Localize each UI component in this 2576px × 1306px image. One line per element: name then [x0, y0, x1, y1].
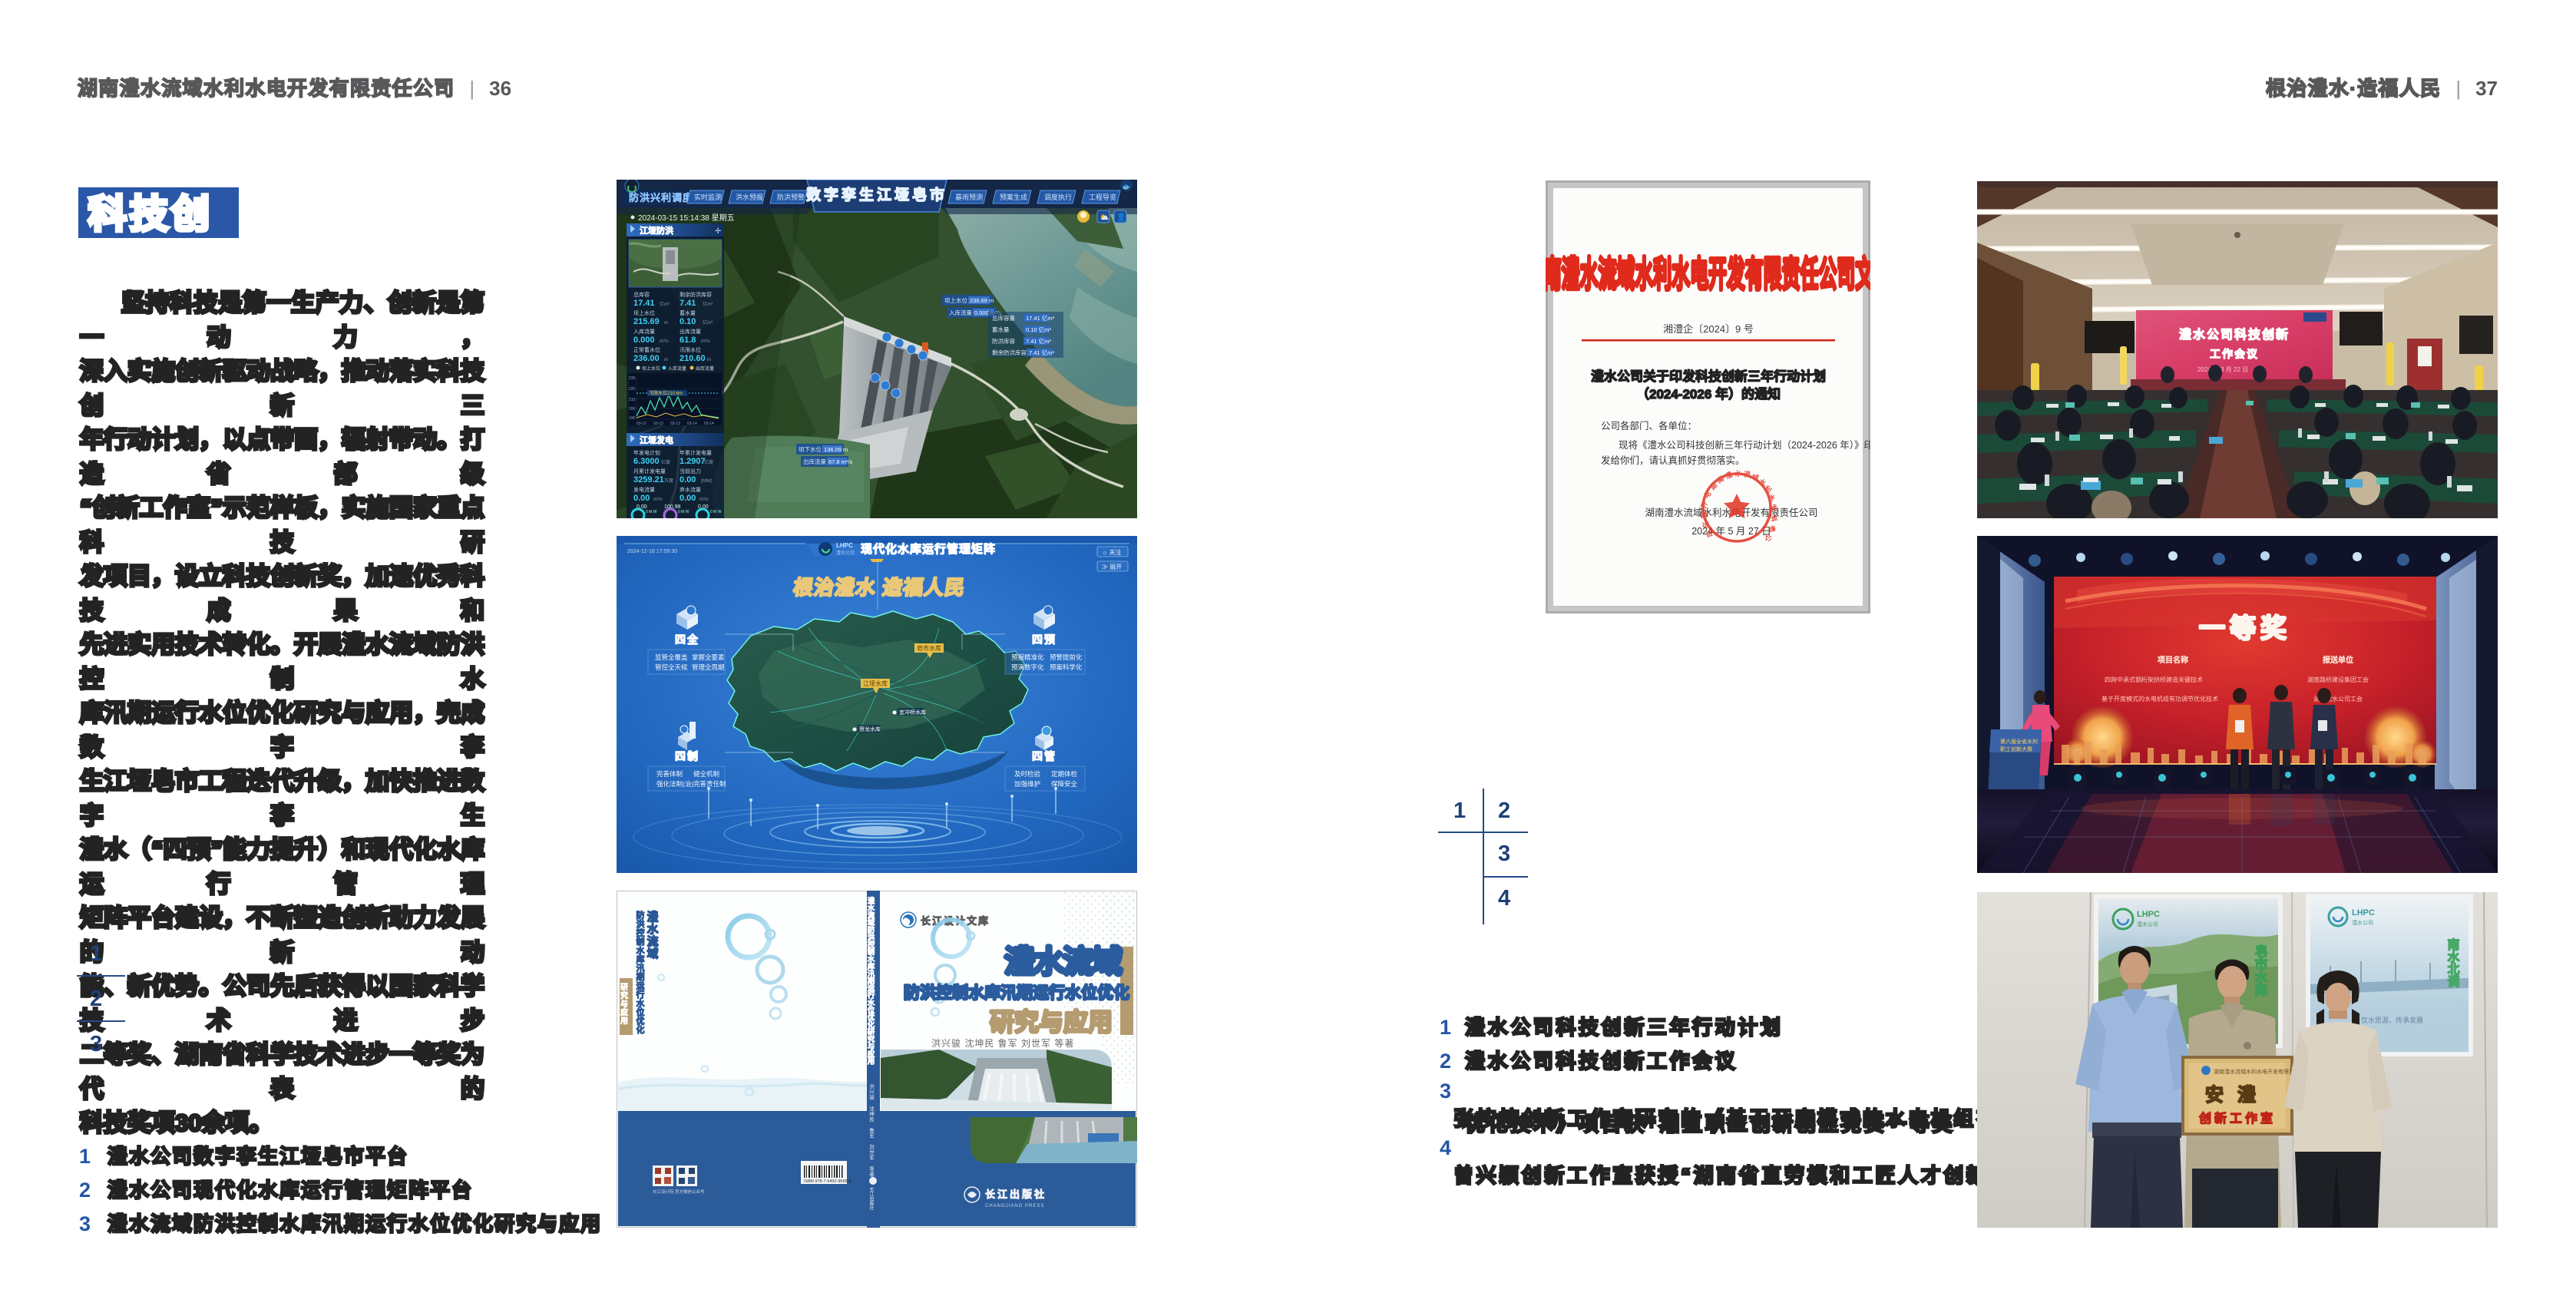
svg-text:弃水流量: 弃水流量 [680, 486, 701, 493]
svg-text:210.60: 210.60 [680, 354, 706, 363]
svg-text:亿m³: 亿m³ [703, 319, 713, 326]
svg-text:2024 年 3 月 22 日: 2024 年 3 月 22 日 [2197, 365, 2248, 373]
svg-text:m³/s: m³/s [653, 498, 663, 502]
svg-text:洪兴骏 沈坤民 鲁军 刘世军 等著: 洪兴骏 沈坤民 鲁军 刘世军 等著 [931, 1037, 1074, 1049]
svg-text:17.41: 17.41 [633, 299, 655, 308]
svg-text:当前出力: 当前出力 [680, 468, 701, 474]
svg-text:蓄水量: 蓄水量 [992, 326, 1010, 333]
svg-text:0 M W: 0 M W [646, 510, 657, 514]
svg-text:皂市水库: 皂市水库 [2253, 944, 2268, 997]
svg-text:03-13: 03-13 [653, 422, 663, 426]
svg-text:0 M W: 0 M W [710, 510, 722, 514]
svg-text:✛: ✛ [715, 227, 721, 236]
svg-text:亿m³: 亿m³ [660, 301, 670, 307]
svg-text:03-13: 03-13 [670, 422, 680, 426]
svg-text:饮水思源，传承发展: 饮水思源，传承发展 [2361, 1016, 2423, 1024]
svg-text:👤: 👤 [1116, 212, 1126, 222]
svg-text:四制: 四制 [675, 750, 699, 762]
svg-text:根治澧水 造福人民: 根治澧水 造福人民 [792, 576, 967, 599]
svg-text:南水北调: 南水北调 [2445, 937, 2460, 988]
svg-text:亿m³: 亿m³ [703, 301, 713, 307]
svg-text:掌握全要素: 掌握全要素 [692, 653, 725, 661]
svg-text:出库流量: 出库流量 [680, 328, 701, 335]
svg-text:03-14: 03-14 [687, 422, 697, 426]
svg-text:实时监测: 实时监测 [694, 193, 722, 201]
svg-text:防洪库容: 防洪库容 [992, 337, 1015, 345]
svg-text:完善责任制: 完善责任制 [693, 780, 726, 788]
svg-text:03-12: 03-12 [637, 422, 646, 426]
svg-text:第六届全省水利: 第六届全省水利 [2000, 738, 2038, 745]
svg-text:61.8: 61.8 [680, 336, 696, 345]
svg-text:0.00: 0.00 [680, 475, 696, 484]
svg-text:年累计发电量: 年累计发电量 [680, 449, 712, 456]
svg-text:预案科学化: 预案科学化 [1050, 663, 1083, 671]
svg-text:防洪控制水库汛期运行水位优化: 防洪控制水库汛期运行水位优化 [904, 984, 1129, 1002]
svg-text:江垭防洪: 江垭防洪 [640, 225, 673, 236]
svg-text:报送单位: 报送单位 [2323, 655, 2353, 665]
svg-text:入库流量: 入库流量 [949, 309, 972, 316]
svg-text:m: m [664, 321, 668, 326]
svg-text:宜冲桥水库: 宜冲桥水库 [899, 709, 926, 716]
svg-text:工程导览: 工程导览 [1089, 193, 1116, 201]
svg-text:0.10: 0.10 [680, 317, 696, 326]
svg-text:长江出版社: 长江出版社 [985, 1189, 1047, 1200]
svg-text:230: 230 [629, 376, 636, 381]
svg-text:发给你们，请认真抓好贯彻落实。: 发给你们，请认真抓好贯彻落实。 [1601, 455, 1745, 466]
svg-text:坝上水位: 坝上水位 [633, 309, 655, 316]
svg-text:皂市水库: 皂市水库 [917, 644, 941, 652]
svg-text:坝下水位: 坝下水位 [799, 445, 822, 453]
svg-text:江垭发电: 江垭发电 [640, 435, 673, 445]
svg-text:澧水公司: 澧水公司 [2352, 919, 2373, 926]
svg-text:保障安全: 保障安全 [1051, 780, 1078, 788]
svg-text:防洪预警: 防洪预警 [777, 193, 805, 201]
svg-text:6.3000: 6.3000 [633, 457, 660, 466]
svg-text:定期体检: 定期体检 [1051, 770, 1078, 778]
svg-text:湖南路桥建设集团工会: 湖南路桥建设集团工会 [2307, 676, 2369, 683]
svg-text:数字孪生江垭皂市: 数字孪生江垭皂市 [806, 186, 947, 203]
svg-text:67.8 m³/s: 67.8 m³/s [828, 458, 853, 465]
svg-text:⛅: ⛅ [1100, 213, 1109, 222]
svg-text:暴雨预测: 暴雨预测 [955, 193, 983, 201]
svg-text:强化法制(治): 强化法制(治) [656, 780, 693, 788]
svg-text:m³/s: m³/s [699, 498, 709, 502]
svg-text:LHPC: LHPC [836, 542, 853, 549]
svg-text:亿度: 亿度 [661, 459, 670, 465]
svg-text:年发电计划: 年发电计划 [633, 449, 660, 456]
svg-text:洪水预报: 洪水预报 [736, 193, 763, 201]
svg-text:湘澧企〔2024〕9 号: 湘澧企〔2024〕9 号 [1663, 323, 1754, 335]
svg-text:预报精准化: 预报精准化 [1011, 653, 1044, 661]
svg-text:现将《澧水公司科技创新三年行动计划（2024-2026 年）: 现将《澧水公司科技创新三年行动计划（2024-2026 年）》印 [1619, 439, 1870, 451]
svg-text:湖南澧水流域水利水电开发有限责任公司文件: 湖南澧水流域水利水电开发有限责任公司文件 [1546, 255, 1870, 294]
svg-text:总库容量: 总库容量 [992, 314, 1015, 322]
svg-text:7.41 亿m³: 7.41 亿m³ [1026, 337, 1051, 345]
svg-text:四预: 四预 [1032, 633, 1057, 646]
svg-text:剩余防洪库容: 剩余防洪库容 [992, 349, 1027, 356]
svg-text:0.000: 0.000 [633, 336, 655, 345]
svg-text:LHPC: LHPC [2137, 910, 2160, 919]
svg-text:安澧: 安澧 [2205, 1084, 2270, 1106]
svg-text:坝上水位: 坝上水位 [642, 365, 660, 372]
svg-text:项目名称: 项目名称 [2158, 655, 2188, 665]
svg-text:澧水流域: 澧水流域 [646, 910, 659, 960]
svg-text:m³/s: m³/s [660, 339, 669, 344]
svg-text:2024-12-18 17:09:30: 2024-12-18 17:09:30 [627, 549, 677, 554]
svg-text:蓄水量: 蓄水量 [680, 309, 696, 316]
svg-text:工作会议: 工作会议 [2210, 348, 2259, 360]
svg-text:2024-03-15 15:14:38 星期五: 2024-03-15 15:14:38 星期五 [638, 213, 735, 223]
svg-text:及时检验: 及时检验 [1014, 770, 1041, 778]
svg-text:0 M W: 0 M W [678, 510, 689, 514]
svg-text:江垭水库: 江垭水库 [863, 679, 888, 687]
svg-text:长江设计院 官方微信公众号: 长江设计院 官方微信公众号 [653, 1189, 705, 1195]
svg-text:0.00: 0.00 [633, 494, 650, 503]
svg-text:210: 210 [629, 398, 636, 402]
svg-text:0.00: 0.00 [680, 494, 696, 503]
svg-text:190: 190 [629, 416, 636, 421]
svg-text:200: 200 [629, 407, 636, 412]
svg-text:LHPC: LHPC [2352, 908, 2375, 918]
svg-text:四管: 四管 [1032, 750, 1057, 762]
svg-text:发电流量: 发电流量 [633, 486, 655, 493]
svg-text:0.10 亿m³: 0.10 亿m³ [1026, 326, 1051, 333]
svg-text:剩余防洪库容: 剩余防洪库容 [680, 291, 712, 298]
svg-text:调度执行: 调度执行 [1044, 193, 1072, 201]
svg-text:3259.21: 3259.21 [633, 475, 664, 484]
svg-text:出库流量: 出库流量 [803, 458, 826, 465]
svg-text:🐟: 🐟 [1122, 183, 1131, 191]
svg-text:管理全周期: 管理全周期 [692, 663, 725, 671]
svg-text:m: m [707, 358, 711, 362]
svg-text:≫ 展开: ≫ 展开 [1102, 564, 1122, 570]
svg-text:预案生成: 预案生成 [1000, 193, 1027, 201]
svg-text:创新工作室: 创新工作室 [2198, 1111, 2276, 1126]
svg-text:236.00: 236.00 [633, 354, 660, 363]
svg-text:加强维护: 加强维护 [1014, 780, 1040, 788]
svg-text:四全: 四全 [675, 633, 699, 646]
svg-text:流: 流 [1744, 470, 1751, 478]
svg-text:坝上水位: 坝上水位 [944, 296, 967, 304]
svg-text:预演数字化: 预演数字化 [1011, 663, 1044, 671]
svg-text:完善体制: 完善体制 [656, 770, 683, 778]
svg-text:四跨中承式钢桁架拱桥建造关键技术: 四跨中承式钢桁架拱桥建造关键技术 [2105, 676, 2203, 683]
svg-text:（2024-2026 年）的通知: （2024-2026 年）的通知 [1636, 386, 1781, 402]
svg-text:一等奖: 一等奖 [2199, 614, 2291, 643]
svg-text:研究与应用: 研究与应用 [990, 1008, 1113, 1036]
svg-text:预警提前化: 预警提前化 [1050, 653, 1083, 661]
svg-text:220: 220 [629, 387, 636, 392]
svg-text:任: 任 [1701, 521, 1710, 529]
svg-text:澧水公司: 澧水公司 [2137, 921, 2158, 927]
svg-text:236.69 m: 236.69 m [970, 297, 994, 304]
svg-text:ISBN 978-7-5492-9565-8: ISBN 978-7-5492-9565-8 [804, 1179, 851, 1184]
svg-text:正常蓄水位: 正常蓄水位 [633, 346, 660, 353]
svg-text:汛限水位210.6m: 汛限水位210.6m [649, 390, 683, 396]
svg-text:亿度: 亿度 [704, 459, 713, 465]
svg-text:17.41 亿m³: 17.41 亿m³ [1026, 314, 1055, 322]
svg-text:健全机制: 健全机制 [693, 770, 719, 778]
svg-text:职工创新大赛: 职工创新大赛 [2000, 746, 2032, 752]
svg-text:万度: 万度 [664, 478, 673, 484]
svg-text:总库容: 总库容 [633, 291, 650, 298]
svg-text:7.41 亿m³: 7.41 亿m³ [1029, 349, 1054, 356]
svg-text:汛限水位: 汛限水位 [680, 346, 701, 353]
svg-text:7.41: 7.41 [680, 299, 696, 308]
svg-text:(MW): (MW) [701, 479, 713, 484]
svg-text:管控全天候: 管控全天候 [655, 663, 688, 671]
svg-text:澧水流域: 澧水流域 [1004, 945, 1123, 979]
svg-text:澧水公司关于印发科技创新三年行动计划: 澧水公司关于印发科技创新三年行动计划 [1591, 369, 1826, 384]
svg-text:现代化水库运行管理矩阵: 现代化水库运行管理矩阵 [861, 542, 996, 556]
svg-text:监管全覆盖: 监管全覆盖 [655, 653, 688, 661]
svg-text:出库流量: 出库流量 [696, 365, 714, 372]
svg-text:CHANGJIANG PRESS: CHANGJIANG PRESS [985, 1204, 1044, 1208]
svg-text:澧水流域防洪控制水库汛期运行水位优化研究与应用: 澧水流域防洪控制水库汛期运行水位优化研究与应用 [866, 896, 876, 1065]
svg-text:月累计发电量: 月累计发电量 [633, 468, 666, 474]
svg-text:m³/s: m³/s [701, 339, 710, 344]
svg-text:入库流量: 入库流量 [633, 328, 655, 335]
svg-text:防洪控制水库汛期运行水位优化: 防洪控制水库汛期运行水位优化 [635, 910, 646, 1035]
svg-text:03-14: 03-14 [704, 422, 714, 426]
svg-text:责: 责 [1767, 524, 1777, 533]
svg-text:☼ 关注: ☼ 关注 [1102, 548, 1122, 556]
svg-text:215.69: 215.69 [633, 317, 660, 326]
svg-text:长江出版社: 长江出版社 [868, 1186, 874, 1211]
svg-text:1.2907: 1.2907 [680, 457, 706, 466]
svg-text:澧水公司科技创新: 澧水公司科技创新 [2179, 327, 2290, 342]
svg-text:防洪兴利调度: 防洪兴利调度 [629, 192, 693, 203]
svg-text:澧水公司: 澧水公司 [836, 550, 855, 556]
svg-text:公司各部门、各单位：: 公司各部门、各单位： [1601, 420, 1697, 431]
svg-text:基于开度模式的水电机组有功调节优化技术: 基于开度模式的水电机组有功调节优化技术 [2101, 695, 2218, 703]
svg-text:m: m [664, 358, 668, 362]
svg-text:入库流量: 入库流量 [668, 365, 686, 372]
svg-text:贺龙水库: 贺龙水库 [859, 726, 881, 732]
svg-text:公: 公 [1764, 534, 1772, 541]
svg-text:136.09 m: 136.09 m [824, 446, 848, 453]
